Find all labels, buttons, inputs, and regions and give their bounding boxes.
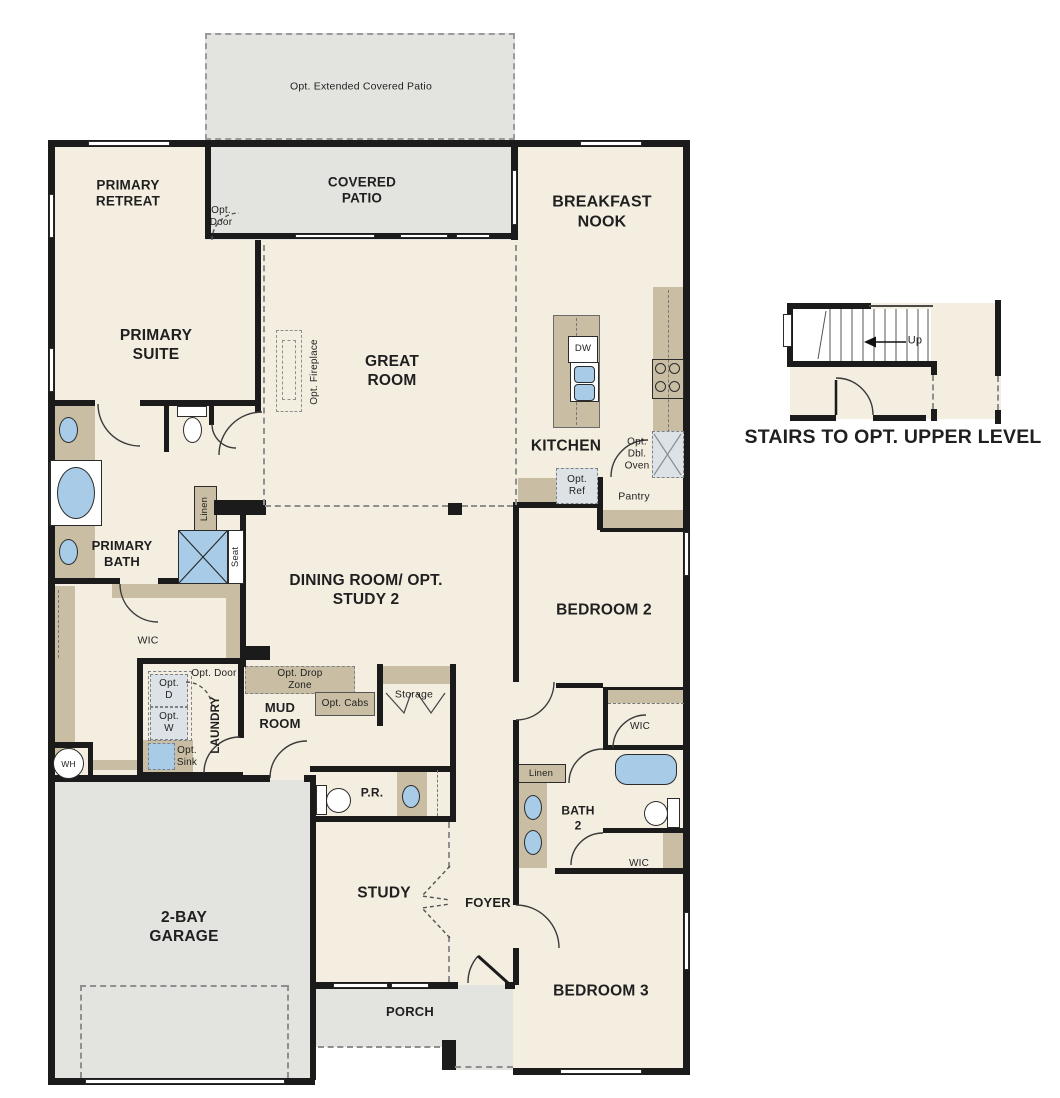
wic-upper-band	[608, 690, 684, 703]
dashed-line	[455, 1066, 513, 1068]
wall-segment	[995, 300, 1001, 376]
label-storage: Storage	[395, 689, 433, 702]
wall-segment	[603, 828, 690, 833]
wall-segment	[48, 578, 120, 584]
wall-segment	[310, 816, 456, 822]
burner	[669, 363, 680, 374]
closet-rod-dashed	[58, 590, 59, 658]
garage-apron-dashed	[80, 985, 82, 1078]
label-mud-room: MUD ROOM	[253, 700, 308, 732]
wall-segment	[603, 687, 690, 690]
label-opt-fireplace: Opt. Fireplace	[309, 339, 321, 405]
label-pr: P.R.	[361, 786, 384, 801]
wall-segment	[137, 772, 243, 778]
label-great-room: GREAT ROOM	[357, 353, 427, 391]
label-primary-retreat: PRIMARY RETREAT	[82, 178, 174, 211]
wall-segment	[603, 690, 608, 748]
toilet-tank	[667, 798, 680, 828]
toilet-bowl	[326, 788, 351, 813]
wall-segment	[137, 658, 243, 664]
wall-segment	[513, 505, 519, 682]
window	[684, 532, 689, 576]
label-opt-door-laundry: Opt. Door	[191, 668, 236, 680]
dashed-line	[448, 936, 450, 982]
wall-segment	[310, 780, 316, 1080]
floor-plan: Opt. Extended Covered Patio PRIMARY RETR…	[0, 0, 1060, 1098]
opt-double-oven	[652, 431, 684, 478]
wall-segment	[48, 742, 93, 748]
window	[333, 983, 388, 988]
storage-band	[383, 666, 450, 684]
bathtub-primary-basin	[57, 467, 95, 519]
wall-segment	[377, 664, 383, 726]
wall-segment	[555, 868, 690, 874]
wall-segment	[790, 415, 836, 421]
wall-segment	[137, 658, 143, 778]
label-primary-bath: PRIMARY BATH	[87, 538, 157, 570]
toilet-tank	[177, 406, 207, 417]
wall-segment	[310, 766, 456, 772]
porch-pillar	[442, 1040, 456, 1070]
label-garage: 2-BAY GARAGE	[144, 909, 224, 947]
dashed-line	[462, 505, 513, 507]
wall-segment	[931, 361, 937, 375]
label-linen-bath2: Linen	[529, 768, 553, 780]
wall-segment	[556, 683, 603, 688]
window	[49, 348, 54, 392]
burner	[669, 381, 680, 392]
wall-segment	[787, 361, 937, 367]
dashed-line	[997, 376, 999, 410]
window	[512, 170, 517, 225]
window	[580, 141, 642, 146]
garage-apron-dashed	[287, 985, 289, 1078]
label-covered-patio: COVERED PATIO	[317, 175, 407, 208]
kitchen-sink-basin	[574, 384, 595, 401]
label-up: Up	[908, 334, 922, 347]
burner	[655, 381, 666, 392]
label-wic-primary: WIC	[137, 635, 158, 648]
wall-segment	[48, 140, 55, 1085]
label-opt-sink: Opt. Sink	[172, 745, 202, 769]
label-porch: PORCH	[386, 1004, 434, 1020]
label-opt-dbl-oven: Opt. Dbl. Oven	[620, 437, 654, 474]
label-bath2: BATH 2	[561, 803, 595, 832]
wall-segment	[873, 415, 926, 421]
dashed-line	[263, 245, 265, 505]
wall-segment	[209, 403, 214, 425]
toilet-bowl	[644, 801, 668, 826]
label-bedroom3: BEDROOM 3	[501, 983, 701, 1002]
wall-segment	[238, 658, 244, 738]
sink	[524, 830, 542, 855]
wall-segment	[88, 742, 93, 780]
wall-segment	[240, 646, 270, 660]
dashed-line	[515, 245, 517, 505]
wic-lower-band	[663, 833, 684, 873]
window	[400, 234, 448, 238]
label-opt-w: Opt. W	[157, 711, 181, 735]
window	[456, 234, 490, 238]
label-pantry: Pantry	[618, 491, 650, 504]
wall-segment	[164, 403, 169, 452]
label-primary-suite: PRIMARY SUITE	[111, 327, 201, 365]
window	[295, 234, 375, 238]
sink	[59, 417, 78, 443]
wall-segment	[448, 503, 462, 515]
wall-segment	[450, 664, 456, 822]
burner	[655, 363, 666, 374]
bathtub-bath2	[615, 754, 677, 785]
dashed-line	[448, 822, 450, 868]
label-opt-drop-zone: Opt. Drop Zone	[271, 668, 329, 692]
dashed-line	[437, 770, 438, 816]
window	[391, 983, 429, 988]
kitchen-cabinet	[518, 478, 557, 505]
label-seat: Seat	[230, 547, 242, 567]
garage-door	[85, 1079, 285, 1084]
shower-primary	[178, 530, 228, 584]
wic-top-band	[112, 584, 242, 598]
label-dishwasher: DW	[575, 343, 591, 355]
label-opt-ref: Opt. Ref	[562, 474, 592, 498]
wic-bottom-band	[90, 760, 137, 770]
wall-segment	[304, 775, 316, 782]
dashed-line	[265, 505, 448, 507]
dashed-line	[932, 375, 934, 409]
wall-segment	[931, 409, 937, 421]
window	[49, 194, 54, 238]
label-opt-cabs: Opt. Cabs	[322, 698, 369, 710]
label-breakfast-nook: BREAKFAST NOOK	[547, 192, 657, 231]
dashed-line	[608, 703, 684, 704]
label-bedroom2: BEDROOM 2	[504, 602, 704, 621]
label-opt-d: Opt. D	[157, 678, 181, 702]
label-opt-extended-patio: Opt. Extended Covered Patio	[251, 81, 471, 94]
wall-segment	[787, 303, 871, 309]
label-linen-primary: Linen	[199, 497, 211, 521]
wall-segment	[995, 410, 1001, 424]
wall-segment	[869, 305, 933, 307]
window	[684, 912, 689, 970]
pantry-cabinet-band	[600, 510, 684, 530]
label-foyer: FOYER	[465, 895, 511, 911]
label-wic-lower: WIC	[629, 858, 649, 870]
stairs-caption: STAIRS TO OPT. UPPER LEVEL	[744, 426, 1041, 450]
dashed-line	[318, 1046, 440, 1048]
label-wic-upper: WIC	[630, 721, 650, 733]
sink	[402, 785, 420, 808]
toilet-bowl	[183, 417, 202, 443]
label-dining: DINING ROOM/ OPT. STUDY 2	[286, 572, 446, 610]
label-kitchen: KITCHEN	[506, 438, 626, 457]
label-laundry: LAUNDRY	[209, 696, 223, 753]
opt-laundry-sink	[148, 743, 175, 770]
garage-apron-dashed	[80, 985, 287, 987]
wall-segment	[513, 720, 519, 775]
window	[88, 141, 170, 146]
wall-segment	[600, 528, 684, 532]
sink	[524, 795, 542, 820]
kitchen-sink-basin	[574, 366, 595, 383]
wall-segment	[48, 400, 95, 406]
label-water-heater: WH	[61, 758, 76, 768]
wall-segment	[513, 948, 519, 985]
label-opt-door-patio: Opt. Door	[204, 205, 238, 229]
wall-segment	[255, 240, 261, 412]
label-study: STUDY	[357, 885, 411, 904]
sink	[59, 539, 78, 565]
wall-segment	[513, 775, 519, 905]
opt-fireplace-outline-inner	[282, 340, 296, 400]
window	[560, 1069, 642, 1074]
wall-segment	[603, 745, 690, 750]
window	[783, 314, 792, 347]
